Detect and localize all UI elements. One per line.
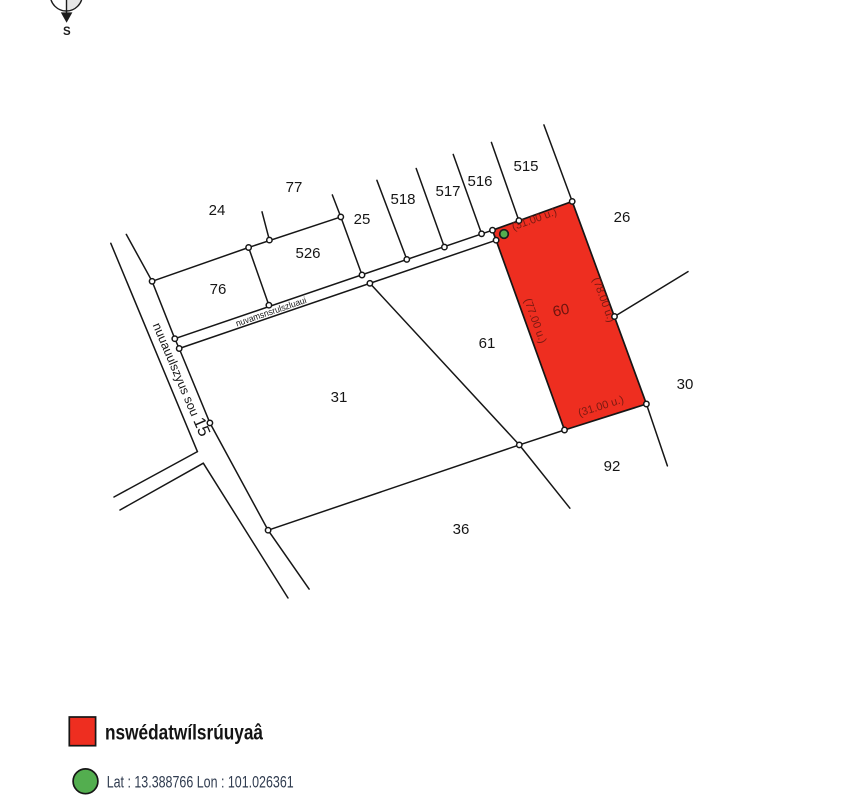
svg-text:nswédatwílsrúuyaâ: nswédatwílsrúuyaâ [105,722,263,745]
svg-text:Lat : 13.388766 Lon : 101.0263: Lat : 13.388766 Lon : 101.026361 [107,773,294,791]
svg-text:516: 516 [467,173,492,190]
svg-text:31: 31 [331,389,348,406]
svg-text:36: 36 [453,521,470,538]
svg-text:515: 515 [513,158,538,175]
svg-text:S: S [63,26,71,38]
svg-text:76: 76 [210,281,227,298]
svg-text:61: 61 [479,335,496,352]
svg-text:26: 26 [614,209,631,226]
svg-text:60: 60 [551,301,571,321]
svg-text:518: 518 [390,191,415,208]
svg-text:24: 24 [209,202,226,219]
svg-text:92: 92 [604,458,621,475]
svg-text:25: 25 [354,211,371,228]
svg-text:517: 517 [435,183,460,200]
svg-text:30: 30 [677,376,694,393]
svg-text:526: 526 [295,245,320,262]
svg-text:77: 77 [286,179,303,196]
